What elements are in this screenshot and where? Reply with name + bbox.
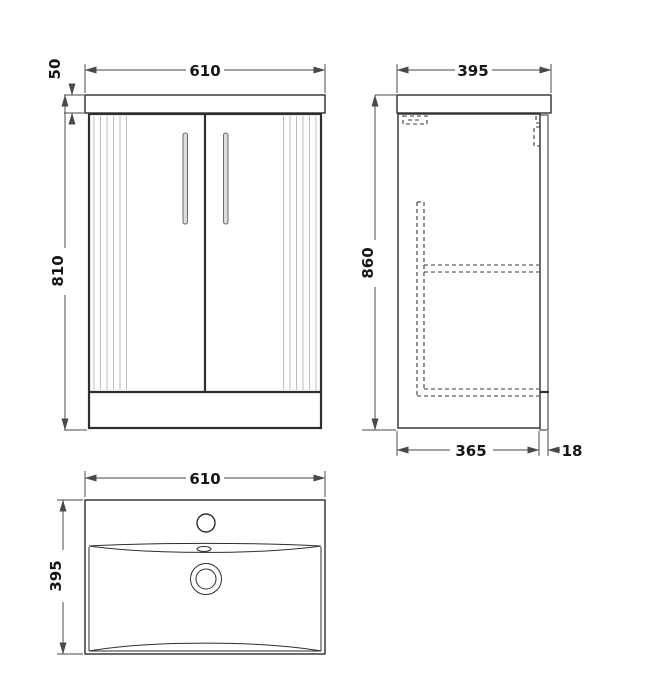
side-depth-dimension: 395 bbox=[397, 62, 551, 93]
side-carcass-depth-label: 365 bbox=[455, 442, 486, 460]
basin-bowl bbox=[89, 543, 321, 651]
internal-panel-dashed bbox=[417, 202, 424, 396]
front-view: 610 50 810 bbox=[46, 59, 325, 430]
bottom-shelf-dashed bbox=[417, 389, 549, 396]
basin-width-dimension: 610 bbox=[85, 470, 325, 497]
door-side-panel bbox=[540, 115, 548, 430]
basin-outer-rim bbox=[85, 500, 325, 654]
middle-shelf-dashed bbox=[424, 265, 539, 272]
wall-bracket-dashed bbox=[403, 116, 427, 124]
hinge-dashed bbox=[534, 116, 540, 146]
side-height-label: 860 bbox=[359, 247, 377, 278]
basin-width-label: 610 bbox=[189, 470, 220, 488]
front-height-label: 810 bbox=[49, 255, 67, 286]
front-width-label: 610 bbox=[189, 62, 220, 80]
basin-depth-label: 395 bbox=[47, 560, 65, 591]
tap-hole bbox=[197, 514, 215, 532]
basin-depth-dimension: 395 bbox=[47, 500, 83, 654]
side-view: 395 860 bbox=[359, 62, 582, 460]
right-door-flutes bbox=[284, 116, 317, 390]
worktop-front bbox=[85, 95, 325, 113]
side-bottom-dimensions: 365 18 bbox=[397, 431, 582, 460]
vanity-technical-drawing: 610 50 810 bbox=[0, 0, 650, 700]
worktop-side bbox=[397, 95, 551, 113]
side-depth-label: 395 bbox=[457, 62, 488, 80]
right-door-handle bbox=[224, 133, 229, 224]
drain-waste bbox=[191, 564, 222, 595]
cabinet-side-outline bbox=[398, 114, 540, 428]
side-door-thickness-label: 18 bbox=[562, 442, 583, 460]
left-door-handle bbox=[183, 133, 188, 224]
left-door-flutes bbox=[94, 116, 127, 390]
side-height-dimension: 860 bbox=[359, 95, 396, 430]
front-height-dimension: 810 bbox=[49, 95, 87, 430]
front-worktop-height-label: 50 bbox=[46, 59, 64, 80]
front-width-dimension: 610 bbox=[85, 62, 325, 93]
overflow-slot bbox=[197, 547, 211, 552]
basin-view: 610 395 bbox=[47, 470, 325, 654]
